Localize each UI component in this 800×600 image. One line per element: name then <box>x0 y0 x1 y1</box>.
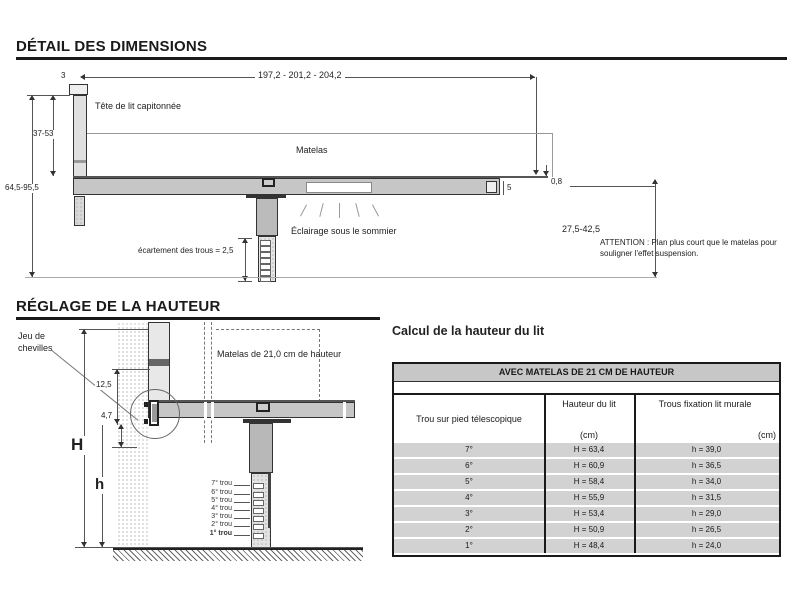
dim-tick <box>79 329 148 330</box>
panel-joint <box>149 359 169 366</box>
hole-label-5: 5° trou <box>192 497 232 504</box>
mattress-dashed-right <box>319 329 320 402</box>
dowel-label-line2: chevilles <box>18 344 53 354</box>
mattress-right-line <box>552 133 553 177</box>
arrowhead <box>652 179 658 184</box>
dim-tick <box>112 447 137 448</box>
hole-leader <box>234 535 250 536</box>
dim-extension-line <box>570 186 656 187</box>
hole-label-3: 3° trou <box>192 513 232 520</box>
leg-hole <box>253 492 264 498</box>
headboard-label: Tête de lit capitonnée <box>95 102 181 112</box>
section-title-dimensions: DÉTAIL DES DIMENSIONS <box>16 38 207 55</box>
detail-circle <box>130 389 180 439</box>
mattress-height-label: Matelas de 21,0 cm de hauteur <box>217 350 341 360</box>
light-ray <box>300 205 307 217</box>
table-row: 3° H = 53,4 h = 29,0 <box>394 507 779 521</box>
table-row: 4° H = 55,9 h = 31,5 <box>394 491 779 505</box>
mattress-dashed-top <box>216 329 320 330</box>
leg-mount-block <box>262 178 275 187</box>
dim-h-label: h <box>93 477 106 494</box>
leg-hole <box>253 483 264 489</box>
dim-under-height-label: 27,5-42,5 <box>562 225 600 235</box>
col-header-fixation: Trous fixation lit murale (cm) <box>634 395 779 443</box>
cell-fixation: h = 24,0 <box>634 539 779 553</box>
mattress-break-line <box>211 322 212 443</box>
dim-overall-height-label: 64,5-95,5 <box>4 184 40 193</box>
hole-spacing-label: écartement des trous = 2,5 <box>138 247 233 256</box>
cell-hauteur: H = 50,9 <box>544 523 634 537</box>
mattress-break-line <box>204 322 205 443</box>
dim-line-125 <box>117 370 118 425</box>
dim-line-hole-spacing <box>245 239 246 281</box>
cell-hauteur: H = 58,4 <box>544 475 634 489</box>
platform-end-block <box>486 181 497 193</box>
arrowhead <box>114 369 120 374</box>
table-column-separator <box>544 395 546 553</box>
hole-leader <box>234 502 250 503</box>
hole-leader <box>234 518 250 519</box>
section-rule <box>16 317 380 320</box>
platform-break-gap <box>211 402 214 420</box>
dim-headboard-height-label: 37-53 <box>32 130 54 139</box>
leg-hole <box>253 500 264 506</box>
table-title: Calcul de la hauteur du lit <box>392 325 544 339</box>
table-header-row: Trou sur pied télescopique Hauteur du li… <box>394 395 779 443</box>
cell-fixation: h = 29,0 <box>634 507 779 521</box>
dim-47-label: 4,7 <box>100 412 113 421</box>
cell-trou: 3° <box>394 507 544 521</box>
hole-label-4: 4° trou <box>192 505 232 512</box>
mattress-top-line <box>87 133 553 134</box>
headboard-joint <box>74 160 86 163</box>
dim-extension-line <box>536 77 537 171</box>
platform-break-gap <box>204 402 207 420</box>
dim-cap-label: 3 <box>61 72 65 81</box>
wall-bracket <box>74 196 85 226</box>
light-cutout <box>306 182 372 193</box>
cell-trou: 6° <box>394 459 544 473</box>
section-rule <box>16 57 787 60</box>
dim-tick <box>503 181 504 195</box>
light-ray <box>372 205 379 217</box>
ground-hatch <box>113 548 363 561</box>
arrowhead <box>533 170 539 175</box>
dim-line-under-height <box>655 180 656 277</box>
col-header-hauteur-unit: (cm) <box>544 430 634 440</box>
arrowhead <box>118 424 124 429</box>
mattress-label: Matelas <box>296 146 328 156</box>
arrowhead <box>50 95 56 100</box>
leg-hole <box>253 508 264 514</box>
section-title-hauteur: RÉGLAGE DE LA HAUTEUR <box>16 298 220 315</box>
leg-hole <box>253 524 264 530</box>
cell-hauteur: H = 48,4 <box>544 539 634 553</box>
table-row: 7° H = 63,4 h = 39,0 <box>394 443 779 457</box>
cell-fixation: h = 31,5 <box>634 491 779 505</box>
headboard-cap <box>69 84 88 95</box>
hole-leader <box>234 510 250 511</box>
dim-end-gap-label: 5 <box>507 184 511 193</box>
hole-label-2: 2° trou <box>192 521 232 528</box>
dim-H-label: H <box>69 436 85 455</box>
cell-hauteur: H = 55,9 <box>544 491 634 505</box>
hole-label-6: 6° trou <box>192 489 232 496</box>
cell-fixation: h = 34,0 <box>634 475 779 489</box>
cell-trou: 7° <box>394 443 544 457</box>
table-row: 6° H = 60,9 h = 36,5 <box>394 459 779 473</box>
cell-fixation: h = 39,0 <box>634 443 779 457</box>
leg-sleeve-edge <box>268 473 271 528</box>
light-ray <box>355 203 359 217</box>
table-row: 5° H = 58,4 h = 34,0 <box>394 475 779 489</box>
leg-mount-block-2 <box>256 402 270 412</box>
dim-length-label: 197,2 - 201,2 - 204,2 <box>255 71 345 81</box>
table-gap <box>394 382 779 393</box>
arrowhead <box>543 171 549 176</box>
dim-125-label: 12,5 <box>95 381 113 390</box>
cell-trou: 1° <box>394 539 544 553</box>
cell-trou: 5° <box>394 475 544 489</box>
col-header-trou: Trou sur pied télescopique <box>394 395 544 443</box>
table-row: 2° H = 50,9 h = 26,5 <box>394 523 779 537</box>
arrowhead <box>81 329 87 334</box>
col-header-hauteur-label: Hauteur du lit <box>544 399 634 409</box>
arrowhead <box>530 74 535 80</box>
floor-line <box>25 277 657 278</box>
hole-label-1: 1° trou <box>192 530 232 537</box>
arrowhead <box>80 74 85 80</box>
col-header-fixation-unit: (cm) <box>634 430 776 440</box>
hole-leader <box>234 494 250 495</box>
leg-hole <box>253 516 264 522</box>
platform-break-gap <box>343 402 346 420</box>
instruction-sheet: DÉTAIL DES DIMENSIONS 197,2 - 201,2 - 20… <box>0 0 800 600</box>
dowel-label-line1: Jeu de <box>18 332 45 342</box>
cell-trou: 4° <box>394 491 544 505</box>
bed-platform <box>73 178 500 195</box>
table-band: AVEC MATELAS DE 21 CM DE HAUTEUR <box>394 364 779 382</box>
col-header-fixation-label: Trous fixation lit murale <box>634 399 776 409</box>
light-ray <box>339 203 340 218</box>
table-row: 1° H = 48,4 h = 24,0 <box>394 539 779 553</box>
attention-note: ATTENTION : Plan plus court que le matel… <box>600 238 792 260</box>
height-table: AVEC MATELAS DE 21 CM DE HAUTEUR Trou su… <box>392 362 781 557</box>
table-body: Trou sur pied télescopique Hauteur du li… <box>394 393 779 553</box>
cell-hauteur: H = 53,4 <box>544 507 634 521</box>
hole-leader <box>234 526 250 527</box>
dim-tick <box>238 238 252 239</box>
lighting-label: Éclairage sous le sommier <box>291 227 397 237</box>
leg-hole <box>253 533 264 539</box>
table-column-separator <box>634 395 636 553</box>
cell-hauteur: H = 60,9 <box>544 459 634 473</box>
hole-label-7: 7° trou <box>192 480 232 487</box>
cell-fixation: h = 36,5 <box>634 459 779 473</box>
leg-outer-sleeve <box>256 198 278 236</box>
light-ray <box>319 203 323 217</box>
hole-leader <box>234 485 250 486</box>
cell-hauteur: H = 63,4 <box>544 443 634 457</box>
cell-trou: 2° <box>394 523 544 537</box>
cell-fixation: h = 26,5 <box>634 523 779 537</box>
leg-outer-sleeve-2 <box>249 423 273 473</box>
arrowhead <box>29 95 35 100</box>
arrowhead <box>50 171 56 176</box>
headboard-panel <box>73 95 87 177</box>
dim-plan-thickness-label: 0,8 <box>551 178 562 187</box>
col-header-hauteur: Hauteur du lit (cm) <box>544 395 634 443</box>
dim-tick <box>238 281 252 282</box>
